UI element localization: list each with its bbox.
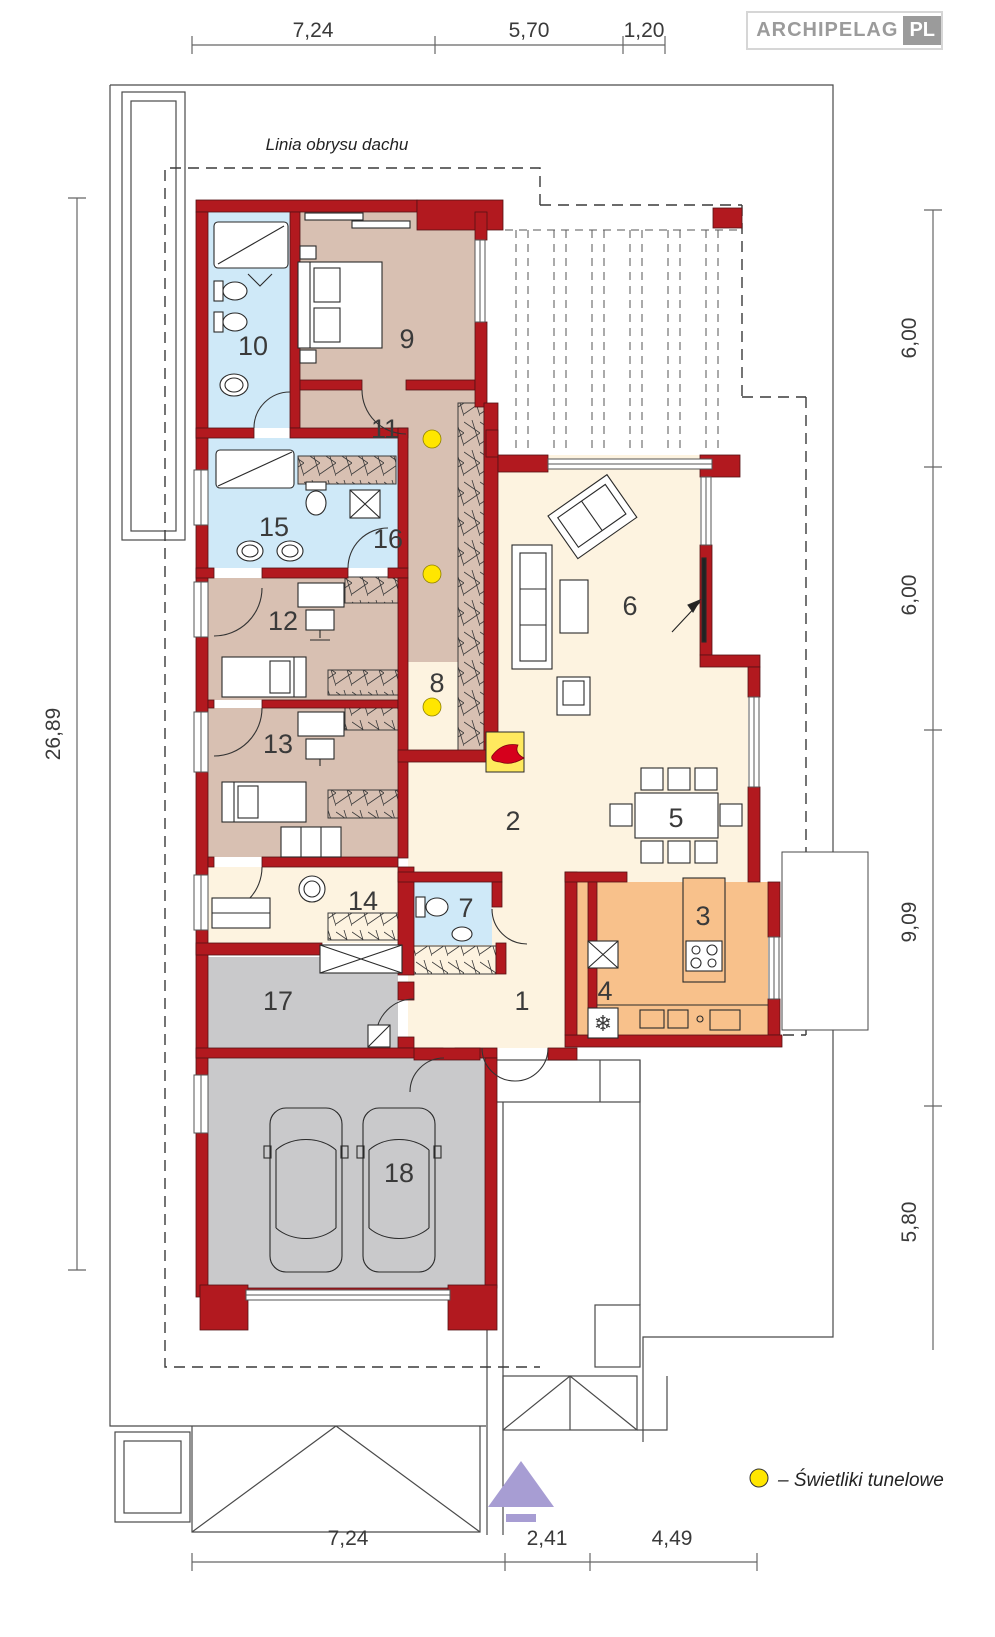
hanger-rail <box>352 221 410 228</box>
roof-outline-label: Linia obrysu dachu <box>266 135 409 154</box>
fridge-snowflake-icon: ❄ <box>594 1011 612 1036</box>
legend-label: – Świetliki tunelowe <box>777 1469 944 1491</box>
window <box>194 712 208 772</box>
skylight-dot <box>423 698 441 716</box>
coffee-table <box>560 580 588 633</box>
room-label-7: 7 <box>458 893 473 923</box>
north-arrow-icon <box>488 1461 554 1522</box>
dim-top-2: 5,70 <box>509 19 550 42</box>
dim-bottom-3: 4,49 <box>652 1527 693 1550</box>
room-label-5: 5 <box>668 803 683 833</box>
toilet-15 <box>306 482 326 515</box>
dim-right-3: 9,09 <box>898 902 921 943</box>
skylight-dot <box>423 565 441 583</box>
window <box>194 470 208 525</box>
nightstand <box>300 246 316 259</box>
cabinet-13 <box>281 827 341 857</box>
dim-top-3: 1,20 <box>624 19 665 42</box>
room-label-4: 4 <box>597 976 612 1006</box>
pergola-joists <box>505 230 740 452</box>
bed-9 <box>298 262 382 348</box>
room-label-8: 8 <box>429 668 444 698</box>
bed-12 <box>222 657 306 697</box>
sofa <box>512 545 552 669</box>
window <box>194 582 208 637</box>
room-label-6: 6 <box>622 591 637 621</box>
nightstand <box>300 350 316 363</box>
floor-mat <box>368 1025 390 1047</box>
sink <box>277 541 303 561</box>
room-label-15: 15 <box>259 512 289 542</box>
room-label-14: 14 <box>348 886 378 916</box>
window <box>475 240 485 322</box>
washing-machine <box>299 876 325 902</box>
window <box>194 875 208 930</box>
window <box>769 937 779 999</box>
side-table <box>557 677 590 715</box>
x-cabinet <box>320 945 402 973</box>
room-label-3: 3 <box>695 901 710 931</box>
room-label-18: 18 <box>384 1158 414 1188</box>
dim-right-2: 6,00 <box>898 575 921 616</box>
dim-bottom-2: 2,41 <box>527 1527 568 1550</box>
floorplan-page: ARCHIPELAG PL <box>0 0 995 1637</box>
room-label-16: 16 <box>373 524 403 554</box>
sink-7 <box>452 927 472 941</box>
floor-plan: ❄ 1 2 3 4 5 6 7 8 9 10 11 12 13 14 <box>0 0 995 1637</box>
fireplace <box>486 732 524 772</box>
room-label-12: 12 <box>268 606 298 636</box>
window <box>749 697 759 787</box>
room-label-11: 11 <box>371 414 399 444</box>
desk-14 <box>212 898 270 928</box>
room-label-1: 1 <box>514 986 529 1016</box>
legend: – Świetliki tunelowe <box>750 1469 944 1491</box>
window <box>194 1075 208 1133</box>
dim-right-4: 5,80 <box>898 1202 921 1243</box>
floor-garage-18 <box>208 1058 485 1288</box>
toilet-7 <box>416 897 448 917</box>
room-label-2: 2 <box>505 806 520 836</box>
dim-right-1: 6,00 <box>898 318 921 359</box>
room-label-10: 10 <box>238 331 268 361</box>
sink <box>237 541 263 561</box>
washer-16 <box>350 490 380 518</box>
bed-13 <box>222 782 306 822</box>
hanger-rail <box>305 213 363 220</box>
toilet <box>214 312 247 332</box>
terrace-east <box>782 852 868 1030</box>
toilet <box>214 281 247 301</box>
dim-top-1: 7,24 <box>293 19 334 42</box>
dim-bottom-1: 7,24 <box>328 1527 369 1550</box>
window <box>701 477 711 545</box>
room-label-9: 9 <box>399 324 414 354</box>
sink <box>220 374 248 396</box>
skylight-dot <box>423 430 441 448</box>
shower-15 <box>216 450 294 488</box>
dim-left-1: 26,89 <box>42 708 65 761</box>
skylight-legend-icon <box>750 1469 768 1487</box>
window <box>548 459 712 469</box>
x-cabinet <box>588 941 618 968</box>
room-label-17: 17 <box>263 986 293 1016</box>
room-label-13: 13 <box>263 729 293 759</box>
garage-door <box>246 1290 450 1300</box>
